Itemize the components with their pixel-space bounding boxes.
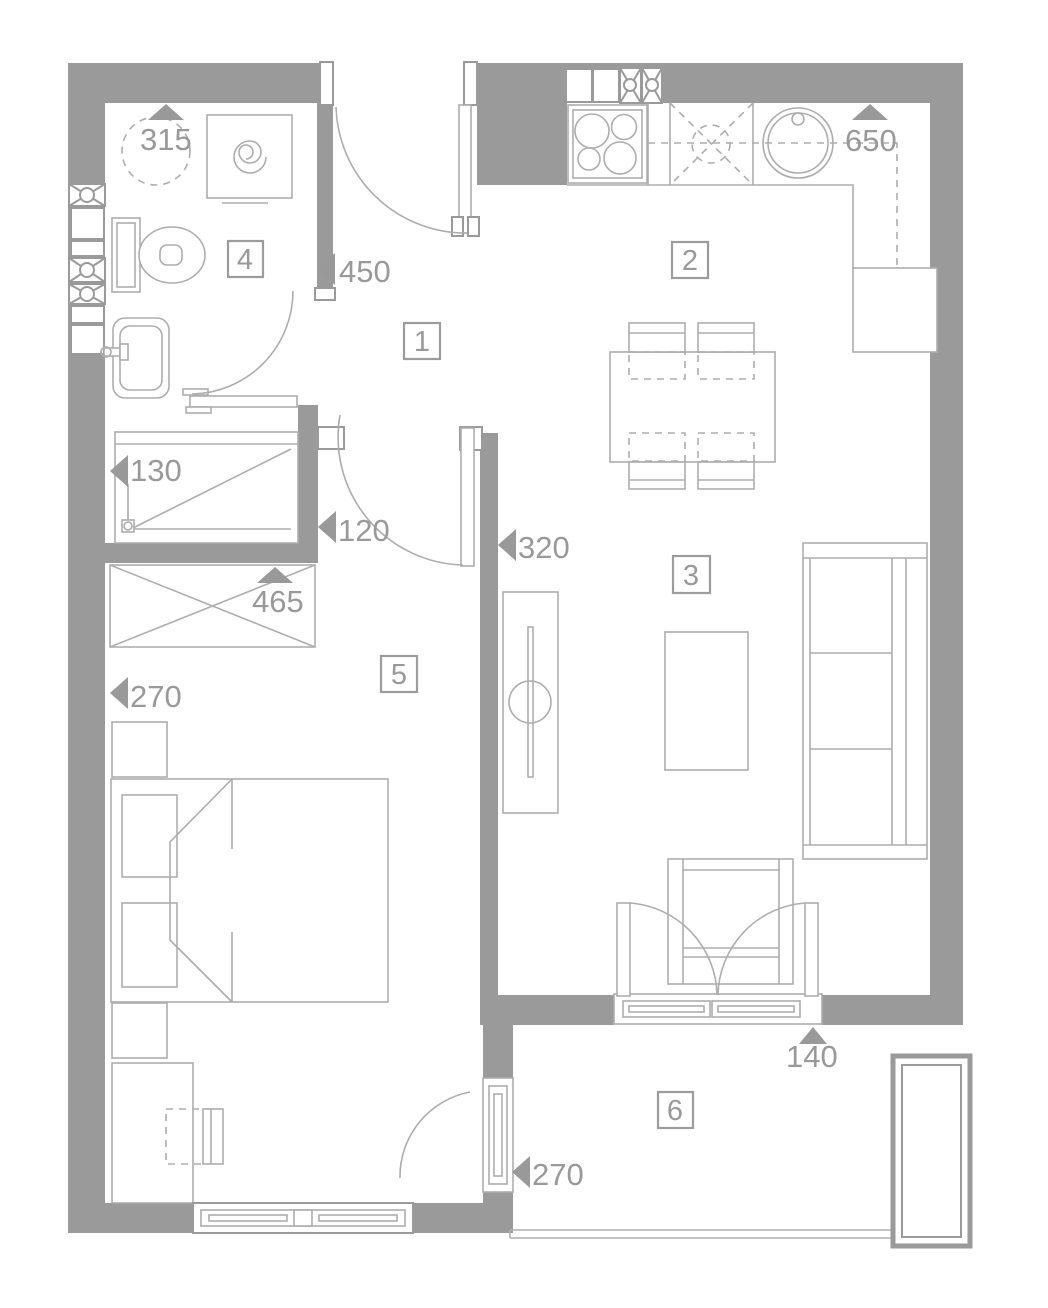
shaft-column-icon	[69, 184, 105, 354]
dimension-315: 315	[140, 104, 192, 157]
floor-plan-drawing: 315 450 650 130 120 320 465 270 140 270 …	[0, 0, 1048, 1308]
living-balcony-door	[617, 903, 818, 996]
dimension-value: 465	[252, 584, 304, 619]
tv-cabinet-symbol	[503, 592, 558, 813]
room-label-2: 2	[672, 242, 708, 278]
room-label-1: 1	[404, 323, 440, 359]
floor-plan: 315 450 650 130 120 320 465 270 140 270 …	[0, 0, 1048, 1308]
dimension-value: 120	[338, 513, 390, 548]
washbasin-symbol	[101, 318, 169, 398]
room-label-4: 4	[228, 241, 263, 277]
room-number: 4	[237, 244, 253, 276]
bedroom-window	[193, 1203, 413, 1233]
bed-symbol	[111, 779, 388, 1002]
room-label-6: 6	[658, 1092, 693, 1128]
entrance-door	[320, 62, 479, 236]
dimension-value: 270	[130, 679, 182, 714]
armchair-symbol	[668, 859, 793, 984]
balcony-threshold	[614, 994, 822, 1024]
sofa-symbol	[803, 543, 927, 859]
balcony-railing	[510, 1230, 893, 1238]
desk-symbol	[112, 1063, 193, 1203]
dimension-value: 320	[518, 530, 570, 565]
fridge-symbol	[853, 268, 937, 352]
dimension-140: 140	[786, 1027, 838, 1074]
dimension-320: 320	[498, 529, 570, 565]
dimension-270-bedroom: 270	[110, 677, 182, 714]
dimension-120: 120	[318, 511, 390, 548]
bathroom-door	[183, 288, 335, 413]
dimension-value: 270	[532, 1157, 584, 1192]
kitchen-shaft-icon	[566, 68, 662, 103]
room-number: 2	[682, 245, 698, 277]
planter-symbol	[893, 1056, 970, 1246]
room-number: 1	[414, 326, 430, 358]
room-number: 3	[683, 560, 699, 592]
dimension-value: 450	[339, 254, 391, 289]
dining-table-symbol	[610, 352, 775, 462]
dimension-270-balcony: 270	[512, 1156, 584, 1192]
room-label-3: 3	[673, 556, 710, 593]
bedroom-balcony-door	[400, 1078, 513, 1192]
dimension-value: 130	[130, 453, 182, 488]
dimension-value: 315	[140, 122, 192, 157]
dimension-650: 650	[845, 104, 897, 158]
dimension-value: 140	[786, 1039, 838, 1074]
room-number: 6	[667, 1095, 683, 1127]
stove-symbol	[568, 105, 647, 183]
room-number: 5	[391, 659, 407, 691]
coffee-table-symbol	[665, 632, 748, 770]
dimension-value: 650	[845, 123, 897, 158]
room-label-5: 5	[381, 656, 417, 692]
toilet-symbol	[112, 218, 205, 292]
washing-machine-symbol	[207, 115, 292, 203]
